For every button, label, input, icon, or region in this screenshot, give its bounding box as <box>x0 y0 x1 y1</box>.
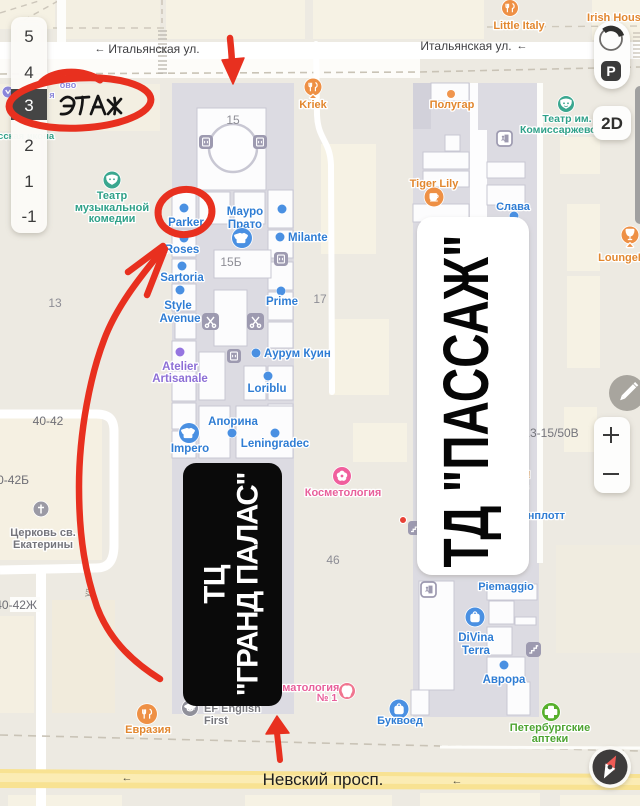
svg-text:Sartoria: Sartoria <box>160 272 204 284</box>
svg-text:Loriblu: Loriblu <box>248 383 287 395</box>
svg-text:LoungeR: LoungeR <box>598 252 640 264</box>
svg-text:P: P <box>606 63 615 79</box>
svg-text:"ГРАНД ПАЛАС": "ГРАНД ПАЛАС" <box>232 473 265 697</box>
svg-text:First: First <box>204 715 228 727</box>
svg-text:←: ← <box>517 40 528 52</box>
svg-text:Prime: Prime <box>266 296 298 308</box>
svg-text:Piemaggio: Piemaggio <box>478 581 534 593</box>
svg-text:40-42Б: 40-42Б <box>0 473 29 487</box>
svg-text:Milante: Milante <box>288 232 328 244</box>
svg-text:Avenue: Avenue <box>159 313 200 325</box>
svg-text:Буквоед: Буквоед <box>377 715 423 727</box>
svg-text:←: ← <box>452 775 463 787</box>
svg-text:13: 13 <box>48 296 62 310</box>
svg-text:Kriek: Kriek <box>299 99 327 111</box>
svg-text:Апорина: Апорина <box>208 416 258 428</box>
svg-text:Итальянская ул.: Итальянская ул. <box>420 39 511 53</box>
svg-text:Atelier: Atelier <box>162 361 198 373</box>
svg-text:Little Italy: Little Italy <box>493 20 545 32</box>
svg-text:←: ← <box>122 772 133 784</box>
svg-text:я: я <box>49 90 54 100</box>
svg-text:комедии: комедии <box>89 213 136 225</box>
svg-text:аптеки: аптеки <box>532 733 569 745</box>
svg-text:5: 5 <box>24 27 33 46</box>
svg-text:Style: Style <box>164 300 192 312</box>
svg-text:13-15/50В: 13-15/50В <box>523 426 578 440</box>
svg-text:4: 4 <box>24 63 33 82</box>
svg-text:2: 2 <box>24 136 33 155</box>
svg-text:ТД "ПАССАЖ": ТД "ПАССАЖ" <box>430 234 501 567</box>
svg-text:1: 1 <box>24 172 33 191</box>
svg-text:40-42: 40-42 <box>33 414 64 428</box>
svg-text:46: 46 <box>326 553 340 567</box>
svg-text:Impero: Impero <box>171 443 209 455</box>
svg-text:17: 17 <box>313 292 327 306</box>
svg-text:Аврора: Аврора <box>483 674 526 686</box>
svg-text:Leningradec: Leningradec <box>241 438 310 450</box>
svg-text:Итальянская ул.: Итальянская ул. <box>108 42 199 56</box>
svg-text:Театр: Театр <box>97 190 128 202</box>
svg-text:←: ← <box>95 43 106 55</box>
svg-text:Roses: Roses <box>165 244 200 256</box>
svg-text:Косметология: Косметология <box>305 487 382 499</box>
svg-text:Слава: Слава <box>496 201 531 213</box>
svg-text:Евразия: Евразия <box>125 724 171 736</box>
svg-text:15Б: 15Б <box>220 255 241 269</box>
svg-text:Церковь св.: Церковь св. <box>10 527 76 539</box>
svg-text:Екатерины: Екатерины <box>13 539 73 551</box>
svg-text:Аурум Куин: Аурум Куин <box>264 348 331 360</box>
svg-text:Мауро: Мауро <box>227 206 263 218</box>
svg-text:№ 1: № 1 <box>317 692 338 704</box>
svg-text:Полугар: Полугар <box>430 99 475 111</box>
svg-text:Artisanale: Artisanale <box>152 373 208 385</box>
svg-text:15: 15 <box>226 113 240 127</box>
svg-text:40-42Ж: 40-42Ж <box>0 598 37 612</box>
svg-text:Terra: Terra <box>462 645 491 657</box>
svg-text:-1: -1 <box>21 207 36 226</box>
svg-text:Невский просп.: Невский просп. <box>263 770 384 789</box>
svg-text:2D: 2D <box>601 114 623 133</box>
svg-text:DiVina: DiVina <box>458 632 494 644</box>
svg-text:ТЦ: ТЦ <box>199 564 232 604</box>
svg-text:3: 3 <box>24 96 33 115</box>
